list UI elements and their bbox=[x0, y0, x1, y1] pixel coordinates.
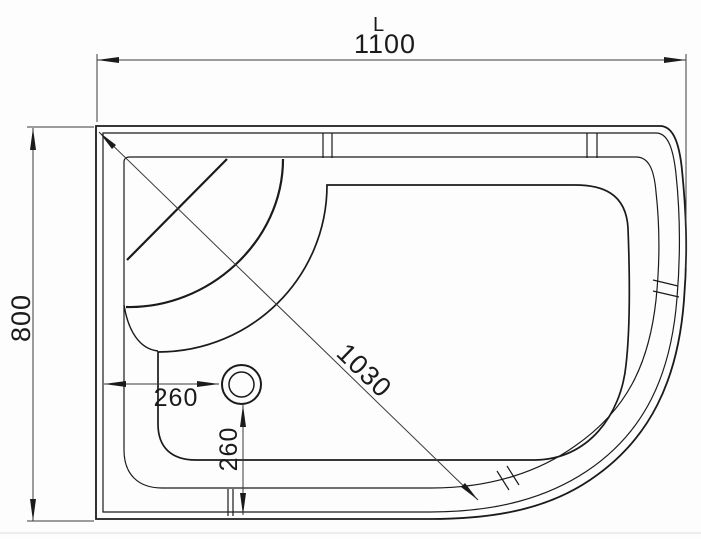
drawing-canvas: L 1100 800 1030 260 260 bbox=[0, 0, 701, 539]
arrow-diagonal-top bbox=[99, 132, 116, 149]
tray-outer-edge-inner bbox=[103, 133, 680, 512]
dimension-label-drain-x: 260 bbox=[154, 384, 199, 412]
seat-skirt-curve bbox=[124, 305, 158, 351]
dimension-labels: L 1100 800 1030 260 260 bbox=[6, 14, 416, 471]
dimension-lines bbox=[27, 54, 686, 521]
arrow-drain-x-left bbox=[104, 381, 126, 387]
rim-tick-top-right bbox=[587, 133, 597, 158]
arrow-depth-bottom bbox=[30, 499, 36, 521]
drain-outer-circle bbox=[222, 365, 261, 404]
arrow-drain-x-right bbox=[197, 381, 219, 387]
rim-joint-ticks bbox=[228, 133, 679, 516]
drain-inner-circle bbox=[229, 372, 254, 397]
technical-drawing-shower-tray: L 1100 800 1030 260 260 bbox=[0, 0, 701, 539]
dimension-label-width: 1100 bbox=[354, 29, 416, 59]
rim-tick-top-left bbox=[323, 133, 332, 158]
arrow-width-right bbox=[664, 57, 686, 63]
dimension-label-diagonal: 1030 bbox=[331, 337, 398, 403]
dimension-label-drain-y: 260 bbox=[215, 427, 243, 472]
rim-inner-boundary bbox=[124, 157, 659, 488]
arrow-drain-y-top bbox=[240, 405, 246, 427]
dimension-label-depth: 800 bbox=[6, 294, 36, 342]
dim-line-diagonal bbox=[99, 132, 478, 500]
tray-outline-group bbox=[96, 126, 686, 519]
arrow-depth-top bbox=[30, 128, 36, 150]
arrow-width-left bbox=[97, 57, 119, 63]
